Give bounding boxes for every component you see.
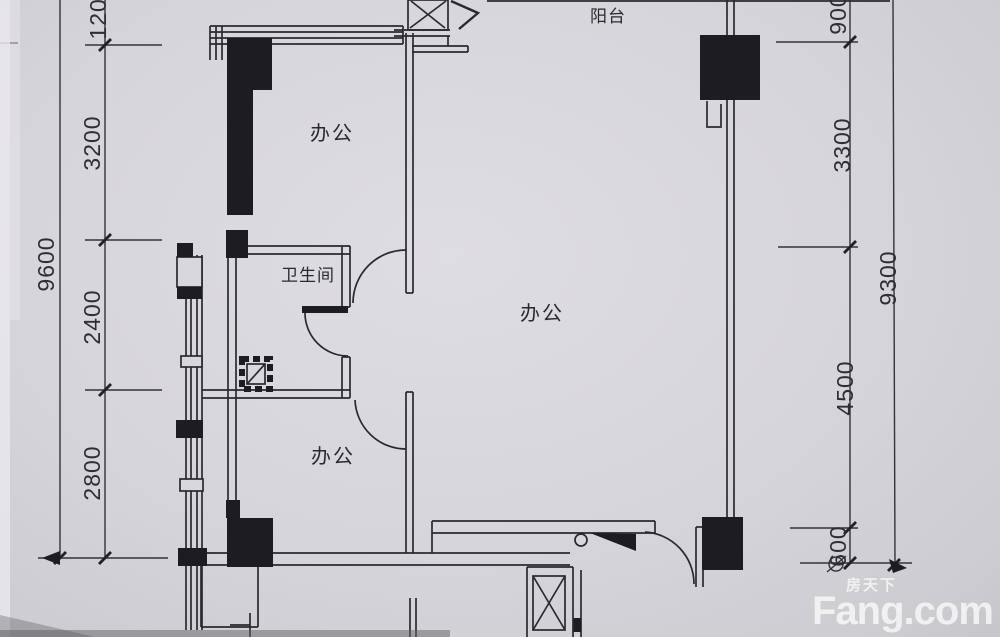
- wall-fill-bathroom-bottom: [226, 500, 240, 518]
- entry-door-hinge: [575, 534, 587, 546]
- label-office-top-left: 办公: [310, 122, 354, 145]
- door-arc-bathroom: [305, 313, 348, 356]
- door-arc-entry: [645, 532, 694, 584]
- label-office-lower-left: 办公: [311, 445, 355, 468]
- door-arc-office-lower: [355, 400, 406, 449]
- dim-right-seg-4500: 4500: [832, 360, 858, 415]
- dim-left-total-9600: 9600: [33, 236, 59, 291]
- column-top-right: [700, 35, 760, 100]
- dim-left-seg-2400: 2400: [79, 289, 105, 344]
- window-transom-1: [181, 356, 202, 367]
- wall-fill-left-2: [177, 287, 202, 299]
- label-bathroom: 卫生间: [281, 266, 335, 285]
- dim-right-total-9300: 9300: [875, 250, 901, 305]
- entry-door-leaf: [590, 533, 636, 551]
- label-balcony: 阳台: [590, 7, 626, 26]
- watermark: 房天下 Fang.com: [812, 576, 993, 633]
- doors-layer: [305, 1, 694, 584]
- dim-arrow-left-bottom: [42, 551, 60, 565]
- label-office-main: 办公: [520, 302, 564, 325]
- bathroom-wall-segment: [302, 306, 348, 313]
- wall-fill-shaft: [573, 618, 581, 632]
- dim-left-seg-1200: 1200: [85, 0, 111, 40]
- wall-fill-left-3: [176, 420, 203, 438]
- dim-left-seg-3200: 3200: [79, 115, 105, 170]
- photo-edge-effects: [0, 0, 450, 637]
- column-bottom-right: [702, 517, 743, 570]
- watermark-logo: Fang.com: [812, 589, 993, 633]
- window-transom-2: [180, 479, 203, 491]
- dim-right-seg-600: 600: [825, 525, 851, 566]
- wall-fill-left-1: [177, 243, 193, 257]
- dimension-chain-left: 1200 3200 2400 2800 9600: [0, 0, 168, 565]
- wall-fill-bathroom-top: [226, 230, 248, 258]
- column-bottom-left: [227, 518, 273, 567]
- dim-right-seg-900: 900: [825, 0, 851, 35]
- balcony-door-leaf: [451, 1, 478, 29]
- wall-fill-left-4: [178, 548, 207, 566]
- dimension-chain-right: 900 3300 4500 600 9300: [776, 0, 912, 573]
- dim-right-seg-3300: 3300: [829, 117, 855, 172]
- right-wall-bracket: [707, 101, 721, 127]
- column-top-left: [227, 38, 272, 215]
- dim-left-seg-2800: 2800: [79, 445, 105, 500]
- window-wall-left: [177, 255, 203, 630]
- window-pier: [177, 257, 202, 287]
- floor-plan-photo: 1200 3200 2400 2800 9600 900 3300 4500 6…: [0, 0, 1000, 637]
- door-arc-corridor-upper: [353, 250, 406, 303]
- floor-plan-svg: 1200 3200 2400 2800 9600 900 3300 4500 6…: [0, 0, 1000, 637]
